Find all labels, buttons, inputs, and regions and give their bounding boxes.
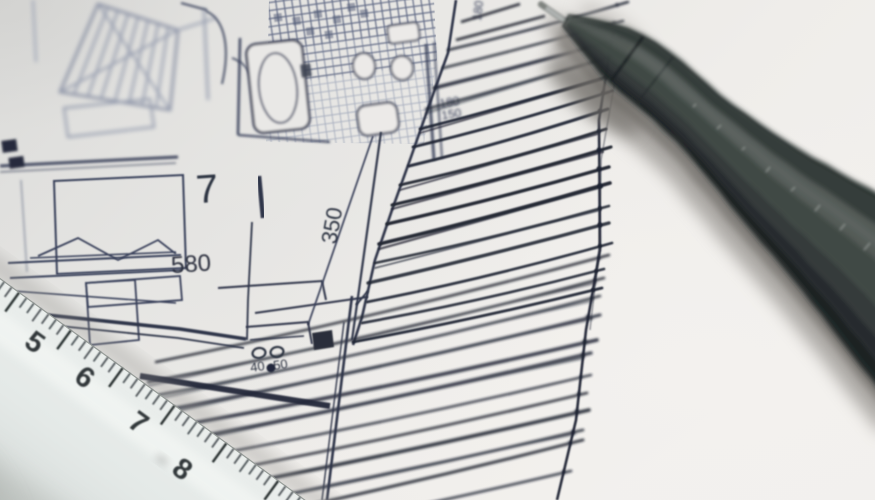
svg-text:580: 580 bbox=[170, 250, 212, 280]
svg-text:40: 40 bbox=[249, 358, 265, 375]
svg-text:7: 7 bbox=[194, 167, 219, 212]
